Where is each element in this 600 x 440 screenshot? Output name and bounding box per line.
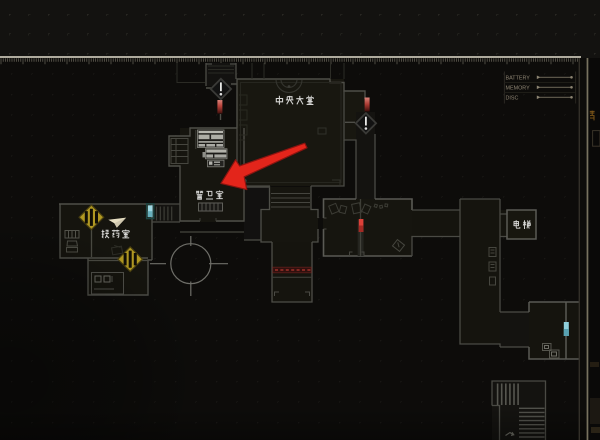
svg-text:MEMORY: MEMORY — [506, 85, 531, 91]
svg-text:DISC: DISC — [506, 95, 519, 101]
svg-text:BATTERY: BATTERY — [506, 75, 531, 81]
